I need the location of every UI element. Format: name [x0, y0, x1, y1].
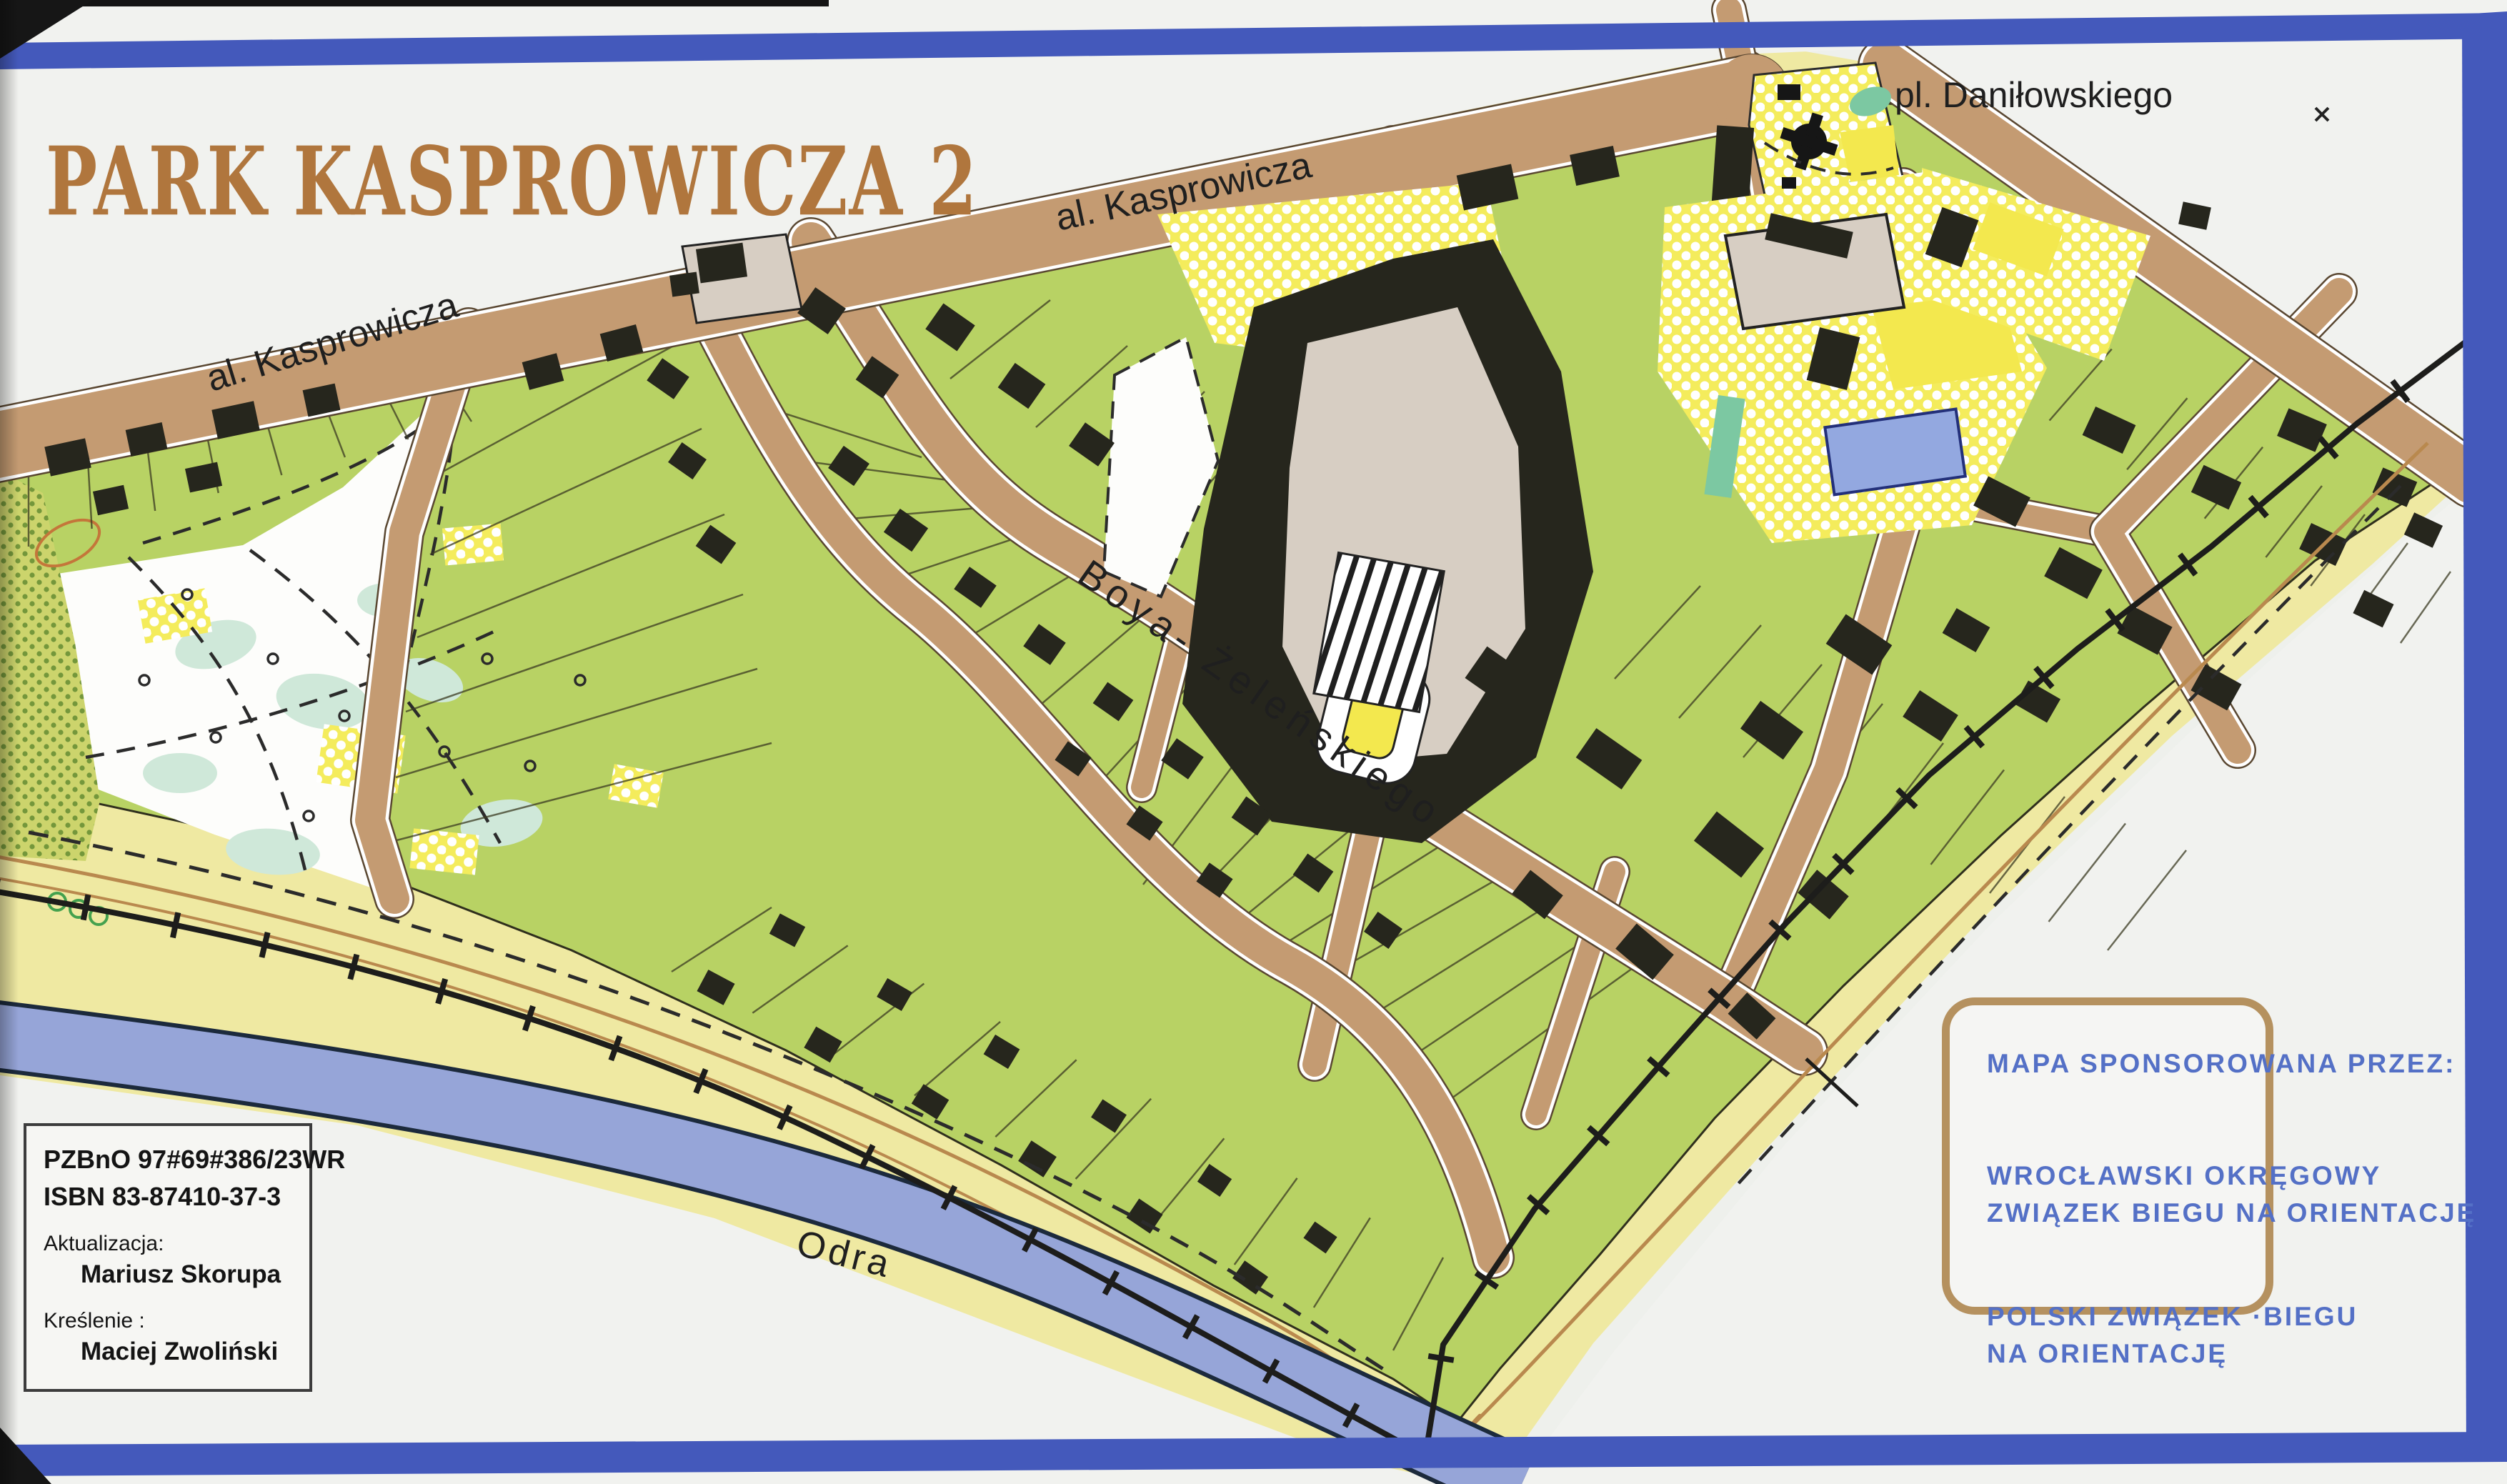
scanned-map-page: al. Kasprowicza al. Kasprowicza pl. Dani…: [0, 0, 2507, 1484]
construction-hatched-area: [1314, 552, 1444, 712]
sponsor2-line2: NA ORIENTACJĘ: [1987, 1335, 2237, 1373]
update-name: Mariusz Skorupa: [81, 1260, 295, 1289]
sponsor2-line1: POLSKI ZWIĄZEK ·BIEGU: [1987, 1298, 2237, 1336]
isbn-number: ISBN 83-87410-37-3: [44, 1182, 295, 1212]
sponsor-box: MAPA SPONSOROWANA PRZEZ: WROCŁAWSKI OKRĘ…: [1942, 997, 2273, 1315]
map-title: PARK KASPROWICZA 2: [46, 126, 978, 237]
scan-top-line: [0, 0, 829, 6]
building: [696, 243, 747, 284]
scan-left-shadow: [0, 0, 19, 1484]
sponsor-heading: MAPA SPONSOROWANA PRZEZ:: [1987, 1045, 2237, 1083]
sponsor1-line2: ZWIĄZEK BIEGU NA ORIENTACJĘ: [1987, 1195, 2237, 1232]
frame-right-band: [2462, 11, 2507, 1462]
license-number: PZBnO 97#69#386/23WR: [44, 1145, 295, 1175]
sponsor1-line1: WROCŁAWSKI OKRĘGOWY: [1987, 1157, 2237, 1195]
imprint-box: PZBnO 97#69#386/23WR ISBN 83-87410-37-3 …: [24, 1123, 312, 1392]
drafting-name: Maciej Zwoliński: [81, 1338, 295, 1366]
update-label: Aktualizacja:: [44, 1232, 295, 1256]
building: [669, 272, 699, 297]
drafting-label: Kreślenie :: [44, 1309, 295, 1333]
rough-open-patch: [409, 828, 479, 875]
vegetation-patch: [143, 753, 217, 793]
label-danilowskiego: pl. Daniłowskiego: [1895, 75, 2173, 115]
